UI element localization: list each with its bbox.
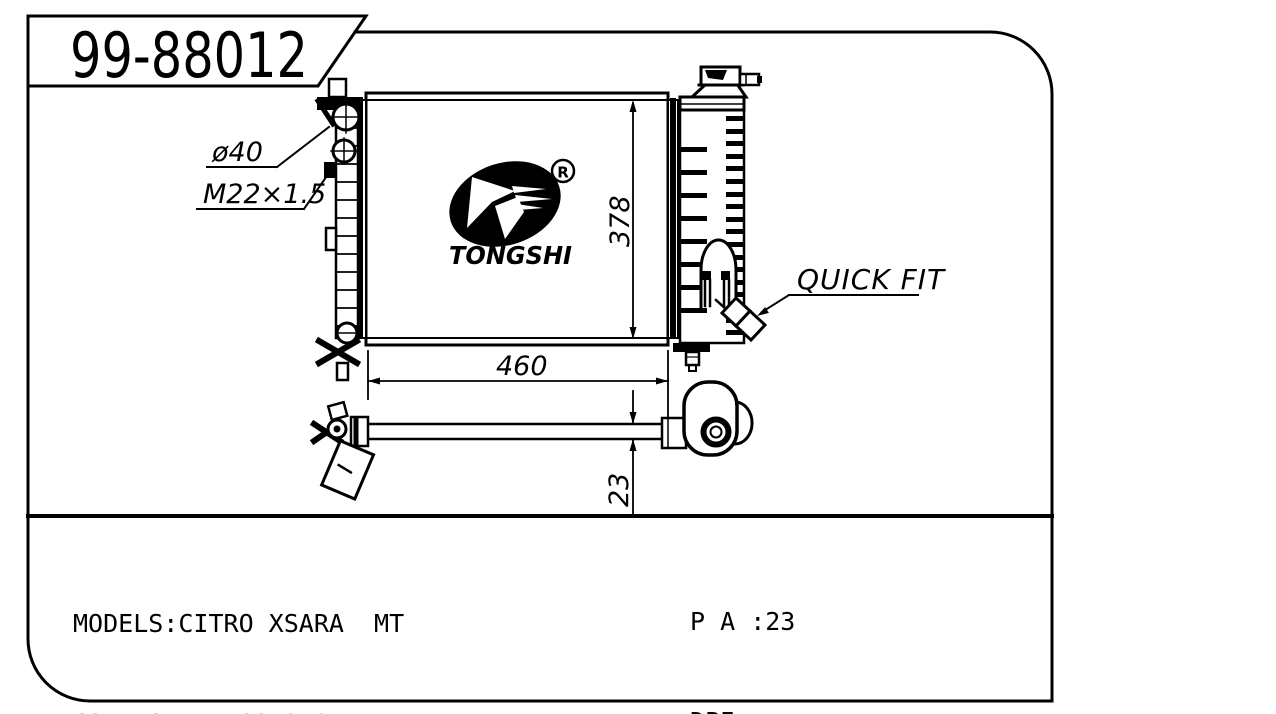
dim-label-core-width: 460 [496,351,548,382]
diameter-label: ø40 [211,137,263,168]
spec-pa: P A :23 [690,605,901,638]
side-view-right-tank [662,382,752,455]
spec-left-column: MODELS:CITRO XSARA MT CORE SIZE:460×378 … [73,540,419,714]
left-tank [317,79,363,380]
spec-core-size: CORE SIZE:460×378 [73,707,419,714]
leader-quick-fit [757,295,918,316]
overflow-nozzle [740,74,762,85]
spec-models: MODELS:CITRO XSARA MT [73,607,419,640]
spec-right-column: P A :23 DPI : OEM :1301.TG NISSENS:61367… [690,538,901,714]
quick-fit-label: QUICK FIT [797,263,946,296]
registered-mark-letter: R [557,164,569,182]
thread-label: M22×1.5 [203,179,326,210]
logo-wordmark: TONGSHI [449,241,572,270]
dim-label-core-height: 378 [605,195,636,247]
spec-dpi: DPI : [690,705,901,714]
radiator-datasheet: R TONGSHI 99-88012 ø40 M22×1.5 QUICK FIT… [0,0,1276,714]
part-number: 99-88012 [70,19,308,92]
dim-label-core-thickness: 23 [604,473,635,507]
right-tank [673,67,765,371]
side-view [314,382,752,514]
